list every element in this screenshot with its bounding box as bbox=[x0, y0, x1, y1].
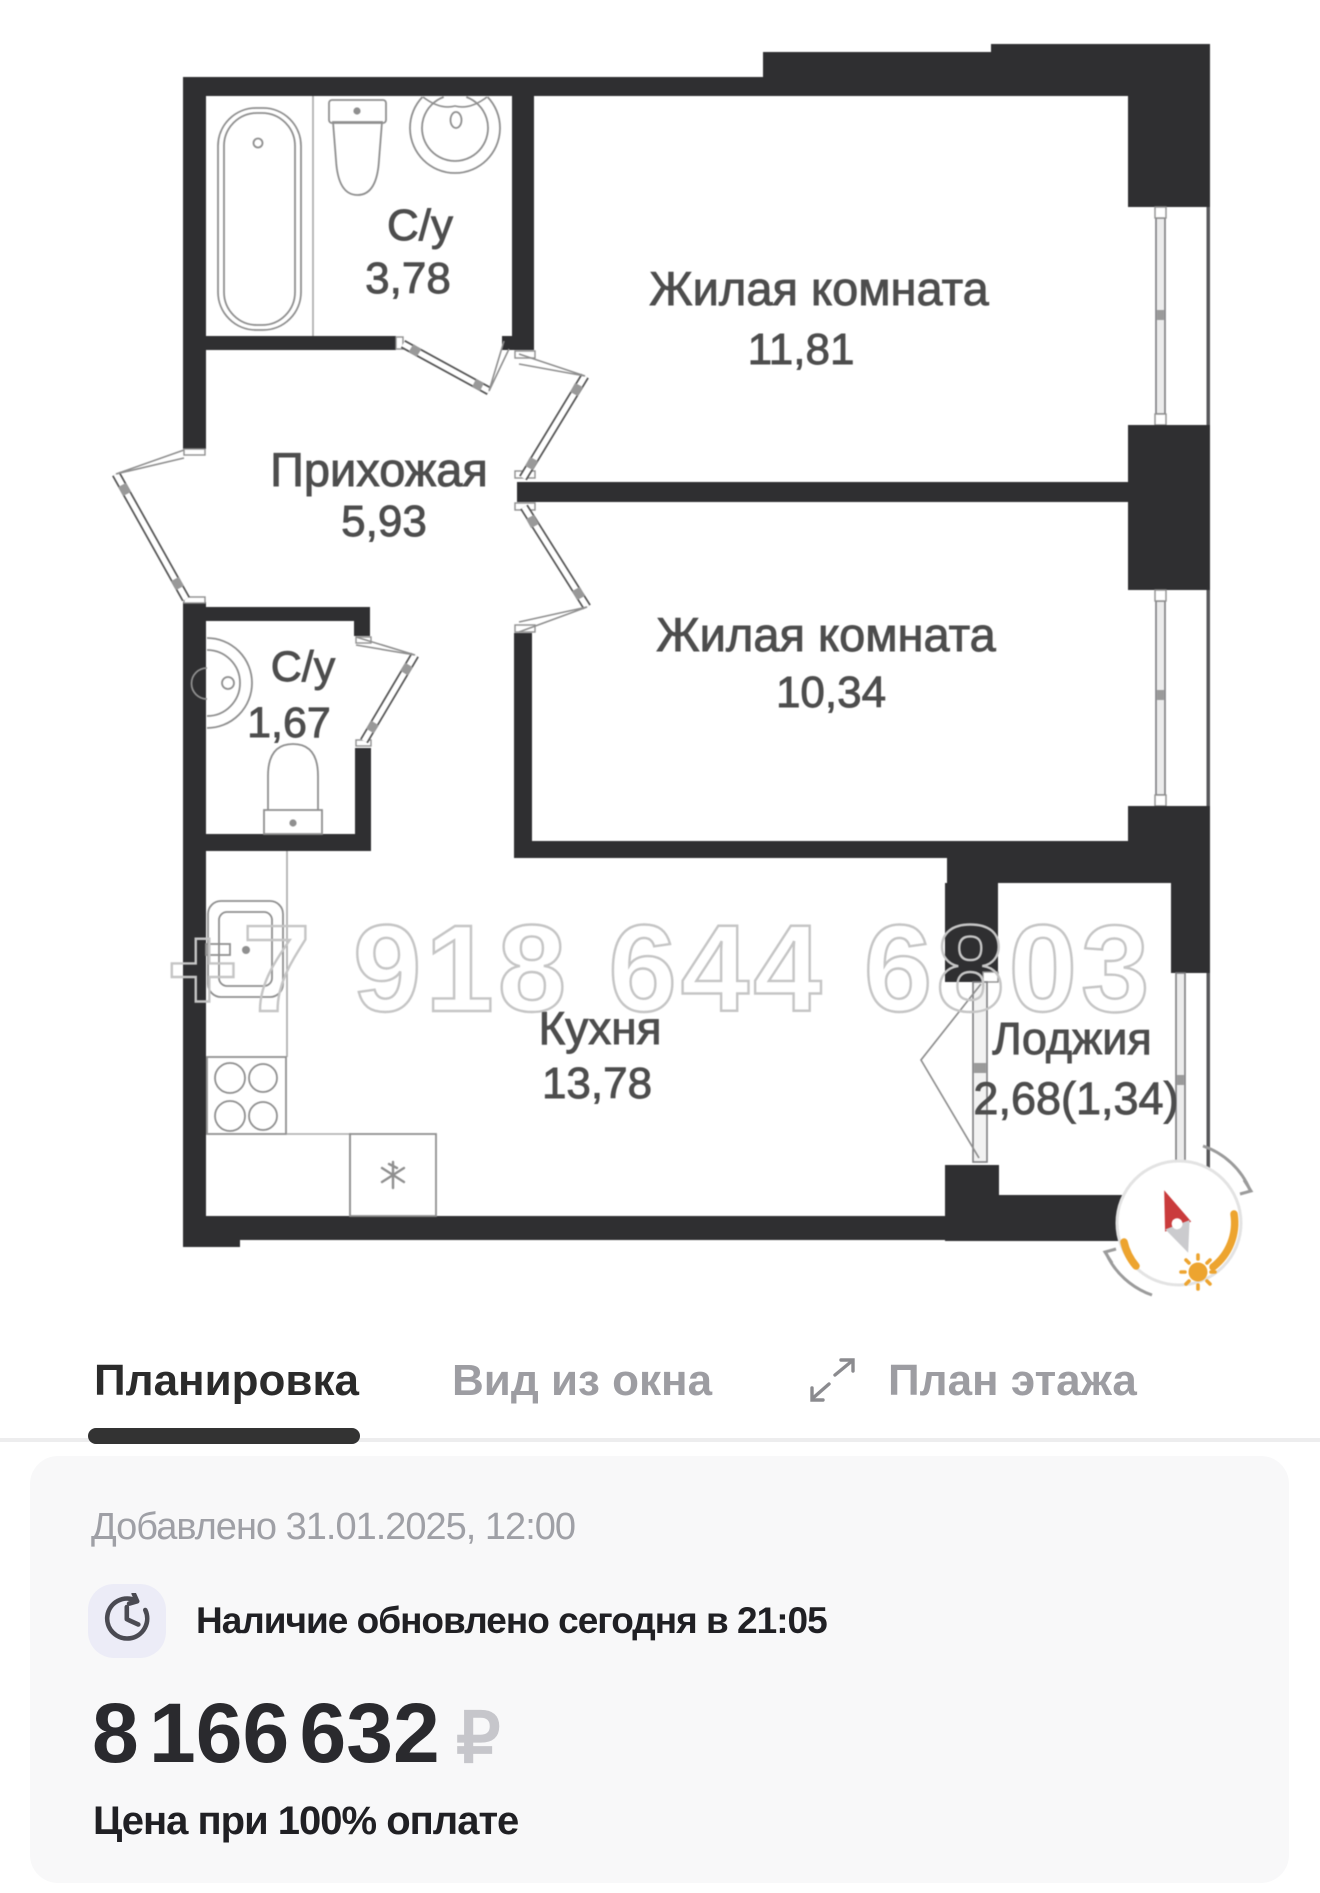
svg-text:Жилая комната: Жилая комната bbox=[649, 262, 989, 315]
svg-text:+7 918 644 6803: +7 918 644 6803 bbox=[167, 901, 1154, 1038]
svg-text:С/у: С/у bbox=[387, 201, 453, 250]
svg-text:13,78: 13,78 bbox=[542, 1059, 652, 1108]
svg-text:1,67: 1,67 bbox=[247, 699, 331, 747]
svg-text:Жилая комната: Жилая комната bbox=[656, 608, 996, 661]
svg-text:3,78: 3,78 bbox=[365, 254, 451, 303]
svg-text:11,81: 11,81 bbox=[748, 325, 855, 374]
svg-text:2,68(1,34): 2,68(1,34) bbox=[973, 1073, 1178, 1124]
svg-text:С/у: С/у bbox=[271, 643, 336, 691]
svg-text:10,34: 10,34 bbox=[776, 668, 886, 717]
svg-text:5,93: 5,93 bbox=[341, 497, 427, 546]
svg-text:Прихожая: Прихожая bbox=[270, 443, 488, 496]
